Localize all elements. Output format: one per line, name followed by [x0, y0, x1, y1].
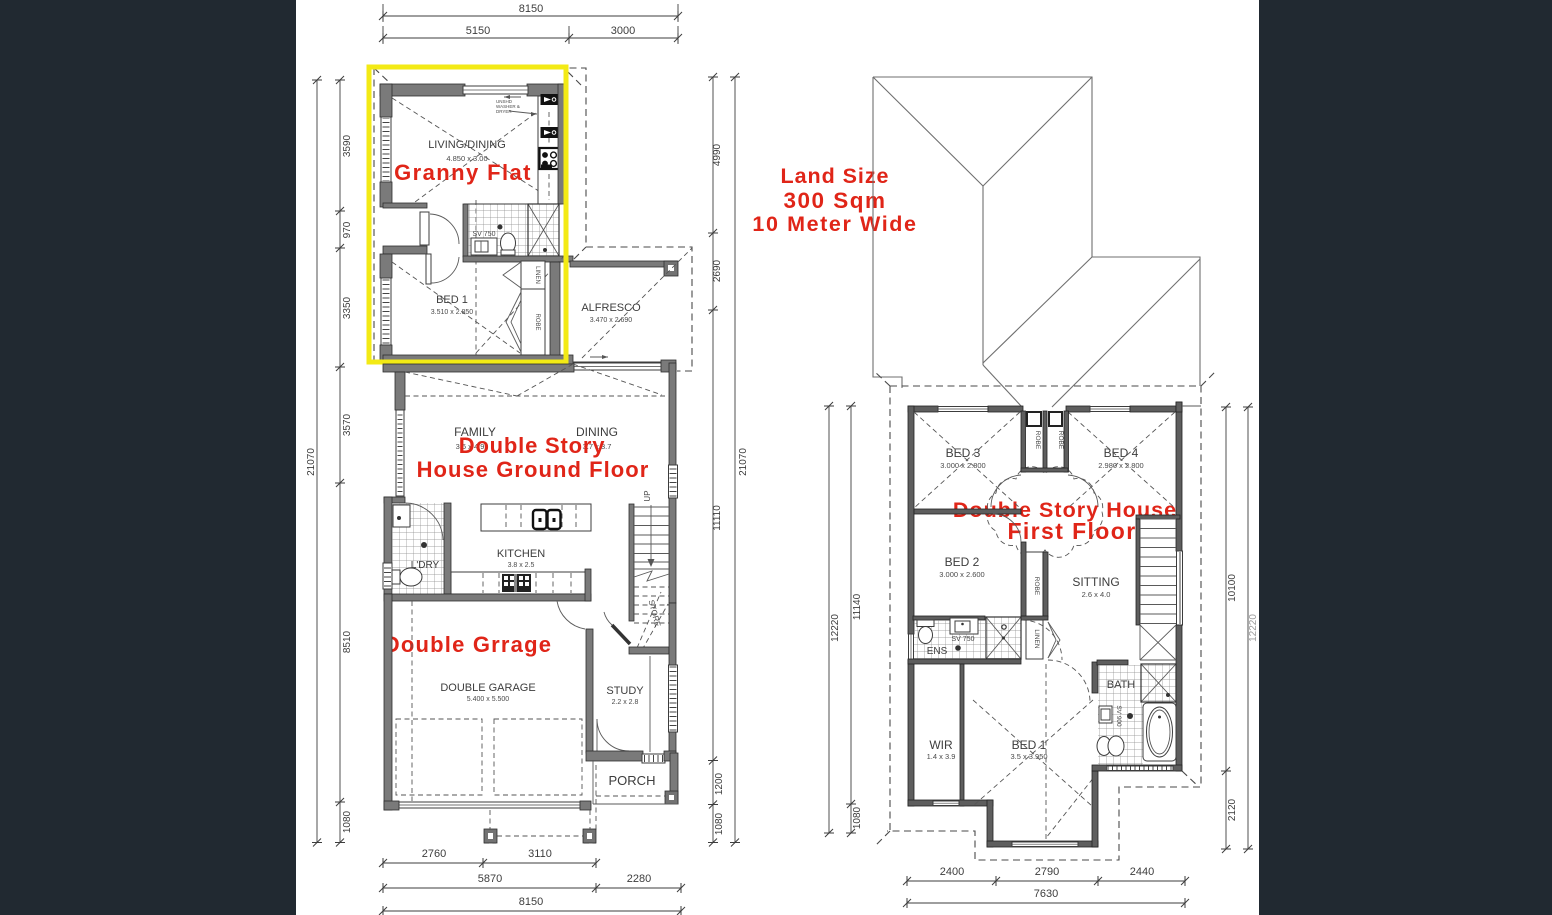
svg-text:ROBE: ROBE	[534, 313, 540, 330]
svg-text:5.400 x 5.500: 5.400 x 5.500	[467, 696, 510, 703]
svg-text:SV 750: SV 750	[473, 231, 496, 238]
svg-text:11140: 11140	[852, 593, 863, 620]
svg-text:10100: 10100	[1227, 574, 1238, 602]
svg-text:8510: 8510	[342, 630, 353, 653]
svg-text:STUDY: STUDY	[606, 685, 644, 697]
svg-text:3.470 x 2.690: 3.470 x 2.690	[590, 317, 633, 324]
svg-text:BED 1: BED 1	[436, 294, 468, 306]
svg-text:3.000 x 2.600: 3.000 x 2.600	[939, 570, 984, 579]
svg-text:LINEN: LINEN	[1033, 629, 1040, 648]
svg-text:11110: 11110	[712, 505, 723, 531]
svg-text:3350: 3350	[342, 296, 353, 319]
svg-text:ROBE: ROBE	[1034, 431, 1041, 450]
svg-text:SV 900: SV 900	[1115, 705, 1122, 727]
svg-text:5870: 5870	[478, 873, 502, 885]
svg-text:LINEN: LINEN	[534, 266, 540, 284]
svg-text:UP: UP	[643, 490, 652, 501]
svg-text:1080: 1080	[714, 812, 725, 835]
svg-text:3.000 x 2.800: 3.000 x 2.800	[940, 461, 985, 470]
svg-text:SV 750: SV 750	[952, 636, 975, 643]
svg-text:ROBE: ROBE	[1057, 431, 1064, 450]
svg-text:8150: 8150	[519, 3, 543, 15]
svg-text:2760: 2760	[422, 848, 446, 860]
svg-text:BED 2: BED 2	[945, 555, 980, 569]
svg-text:7630: 7630	[1034, 888, 1058, 900]
svg-text:2120: 2120	[1227, 798, 1238, 821]
svg-text:BED 3: BED 3	[946, 446, 981, 460]
svg-text:2790: 2790	[1035, 866, 1059, 878]
svg-text:3000: 3000	[611, 25, 635, 37]
svg-text:3570: 3570	[342, 413, 353, 436]
svg-text:12220: 12220	[830, 614, 841, 642]
svg-text:PORCH: PORCH	[609, 773, 656, 788]
svg-text:L'DRY: L'DRY	[411, 560, 440, 571]
svg-text:LIVING/DINING: LIVING/DINING	[428, 139, 506, 151]
svg-text:Double Story: Double Story	[459, 433, 606, 458]
svg-text:3590: 3590	[342, 134, 353, 157]
svg-text:8150: 8150	[519, 896, 543, 908]
svg-text:ROBE: ROBE	[1033, 577, 1040, 596]
svg-text:5150: 5150	[466, 25, 490, 37]
svg-text:KITCHEN: KITCHEN	[497, 548, 545, 560]
svg-text:300 Sqm: 300 Sqm	[783, 188, 886, 213]
svg-text:10 Meter Wide: 10 Meter Wide	[752, 212, 917, 236]
svg-text:3110: 3110	[528, 848, 552, 860]
svg-text:12220: 12220	[1248, 614, 1259, 642]
svg-text:SITTING: SITTING	[1072, 575, 1119, 589]
svg-text:1080: 1080	[852, 806, 863, 829]
svg-text:2.2 x 2.8: 2.2 x 2.8	[612, 699, 639, 706]
svg-text:DOUBLE GARAGE: DOUBLE GARAGE	[440, 682, 535, 694]
svg-text:1.4 x 3.9: 1.4 x 3.9	[927, 752, 956, 761]
svg-text:4990: 4990	[712, 143, 723, 166]
svg-text:2280: 2280	[627, 873, 651, 885]
svg-text:21070: 21070	[738, 448, 749, 476]
svg-text:1200: 1200	[714, 772, 725, 795]
svg-text:1080: 1080	[342, 810, 353, 833]
svg-text:WIR: WIR	[929, 738, 953, 752]
svg-text:21070: 21070	[306, 448, 317, 476]
svg-text:House Ground Floor: House Ground Floor	[417, 457, 650, 482]
svg-text:3.8 x 2.5: 3.8 x 2.5	[508, 562, 535, 569]
svg-text:BATH: BATH	[1107, 679, 1136, 691]
svg-text:2.980 x 2.800: 2.980 x 2.800	[1098, 461, 1143, 470]
svg-text:2.6 x 4.0: 2.6 x 4.0	[1082, 590, 1111, 599]
svg-text:Double Grrage: Double Grrage	[384, 632, 552, 657]
svg-text:3.510 x 2.850: 3.510 x 2.850	[431, 309, 474, 316]
svg-text:2690: 2690	[712, 259, 723, 282]
svg-text:970: 970	[342, 221, 353, 238]
svg-text:2440: 2440	[1130, 866, 1154, 878]
svg-text:First Floor: First Floor	[1007, 518, 1136, 544]
svg-text:2400: 2400	[940, 866, 964, 878]
svg-text:ENS: ENS	[927, 646, 948, 657]
svg-text:Granny Flat: Granny Flat	[394, 160, 532, 185]
